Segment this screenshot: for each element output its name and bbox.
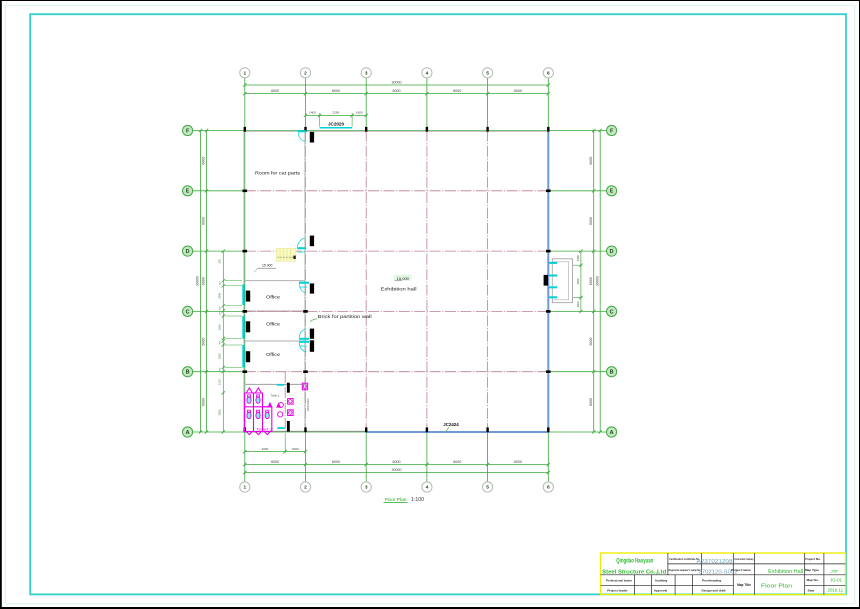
svg-text:30000: 30000: [196, 276, 200, 286]
svg-text:2000: 2000: [292, 447, 299, 451]
svg-text:A: A: [610, 430, 614, 436]
svg-text:2: 2: [304, 71, 307, 77]
svg-text:3200: 3200: [576, 278, 580, 285]
svg-text:Toilet 2: Toilet 2: [256, 427, 274, 432]
svg-text:Proofreading: Proofreading: [702, 578, 721, 582]
svg-text:E: E: [186, 189, 190, 195]
svg-text:Office: Office: [266, 295, 281, 300]
svg-text:30000: 30000: [595, 276, 599, 286]
svg-text:4: 4: [426, 71, 429, 77]
svg-text:Design and draft: Design and draft: [702, 588, 726, 592]
svg-text:1400: 1400: [576, 255, 580, 262]
svg-text:600: 600: [219, 259, 222, 264]
svg-text:Exhibition Hall: Exhibition Hall: [768, 569, 803, 575]
svg-text:Floor Plan: Floor Plan: [385, 497, 407, 503]
svg-text:6000: 6000: [332, 89, 340, 93]
svg-text:Map No.: Map No.: [807, 578, 819, 582]
svg-text:6000: 6000: [453, 89, 461, 93]
svg-text:6000: 6000: [393, 460, 401, 464]
svg-text:6000: 6000: [202, 157, 206, 165]
svg-text:6000: 6000: [514, 89, 522, 93]
svg-text:JTF: JTF: [831, 569, 839, 574]
svg-text:Office: Office: [266, 352, 281, 357]
svg-text:M0921: M0921: [300, 345, 308, 348]
svg-text:2200: 2200: [333, 111, 340, 115]
svg-text:15.000: 15.000: [397, 276, 410, 281]
svg-text:4000: 4000: [262, 447, 269, 451]
svg-text:B: B: [610, 370, 614, 376]
svg-text:1500x2900: 1500x2900: [306, 398, 310, 411]
svg-text:Room for car parts: Room for car parts: [255, 171, 300, 176]
svg-text:6000: 6000: [202, 277, 206, 285]
svg-text:6000: 6000: [332, 460, 340, 464]
svg-text:6000: 6000: [589, 398, 593, 406]
svg-text:1400: 1400: [309, 111, 316, 115]
svg-text:1400: 1400: [356, 111, 363, 115]
svg-text:Exhibition hall: Exhibition hall: [381, 286, 417, 291]
svg-text:M0921: M0921: [300, 286, 308, 289]
svg-text:M0921: M0921: [298, 251, 306, 254]
svg-text:6: 6: [547, 485, 550, 491]
svg-text:JC2020: JC2020: [328, 122, 345, 127]
svg-text:6000: 6000: [453, 460, 461, 464]
svg-text:30000: 30000: [392, 80, 402, 84]
svg-text:6000: 6000: [271, 89, 279, 93]
svg-text:Steel Structure Co.,Ltd: Steel Structure Co.,Ltd: [602, 569, 666, 575]
svg-text:Brick for partition wall: Brick for partition wall: [318, 314, 372, 319]
svg-text:Approval: Approval: [654, 588, 668, 592]
svg-text:6000: 6000: [202, 217, 206, 225]
svg-text:1400: 1400: [576, 301, 580, 308]
svg-text:3: 3: [365, 485, 368, 491]
svg-text:E: E: [610, 189, 614, 195]
svg-text:6000: 6000: [589, 217, 593, 225]
svg-text:JC2424: JC2424: [443, 422, 459, 427]
svg-text:Qingdao Haoyuan: Qingdao Haoyuan: [616, 559, 653, 565]
svg-text:A237021208: A237021208: [697, 559, 733, 565]
svg-text:C: C: [610, 309, 614, 315]
svg-text:6000: 6000: [202, 338, 206, 346]
svg-text:5: 5: [486, 485, 489, 491]
svg-text:Map Title: Map Title: [737, 583, 751, 587]
svg-text:D: D: [610, 249, 614, 255]
svg-text:Construction Company: Construction Company: [734, 557, 754, 561]
svg-text:2018.11: 2018.11: [828, 588, 844, 593]
svg-text:6000: 6000: [589, 338, 593, 346]
svg-text:JG-01: JG-01: [830, 577, 843, 582]
svg-text:Project name: Project name: [731, 568, 751, 572]
svg-text:2100: 2100: [218, 379, 222, 385]
svg-text:3000: 3000: [218, 292, 222, 298]
svg-text:Floor Plan: Floor Plan: [761, 584, 792, 590]
svg-text:Map Type: Map Type: [805, 568, 819, 572]
svg-text:C: C: [186, 309, 190, 315]
svg-text:Project leader: Project leader: [607, 588, 628, 592]
svg-text:6000: 6000: [514, 460, 522, 464]
svg-text:A: A: [186, 430, 190, 436]
svg-text:1:100: 1:100: [411, 497, 424, 503]
svg-text:6000: 6000: [589, 277, 593, 285]
svg-text:30000: 30000: [392, 468, 402, 472]
svg-text:5: 5: [486, 71, 489, 77]
svg-text:1: 1: [243, 71, 246, 77]
svg-text:6000: 6000: [271, 460, 279, 464]
svg-text:1: 1: [243, 485, 246, 491]
svg-text:3000: 3000: [218, 324, 222, 330]
svg-text:Office: Office: [266, 322, 281, 327]
svg-text:6: 6: [547, 71, 550, 77]
svg-text:15.000: 15.000: [262, 264, 272, 268]
svg-text:3: 3: [365, 71, 368, 77]
svg-text:D: D: [186, 249, 190, 255]
svg-text:2: 2: [304, 485, 307, 491]
svg-text:3000: 3000: [218, 353, 222, 359]
svg-text:Auditing: Auditing: [655, 578, 668, 582]
svg-text:B: B: [186, 370, 190, 376]
svg-text:Toilet 1: Toilet 1: [271, 394, 280, 398]
svg-text:Registered engineer's stamp No: Registered engineer's stamp No.: [669, 568, 701, 572]
svg-text:3900: 3900: [218, 409, 222, 415]
svg-text:Date: Date: [808, 588, 815, 592]
svg-text:6000: 6000: [393, 89, 401, 93]
svg-text:6000: 6000: [589, 157, 593, 165]
svg-text:Project No.: Project No.: [805, 557, 821, 561]
svg-text:Professional leader: Professional leader: [606, 578, 633, 582]
svg-text:4: 4: [426, 485, 429, 491]
svg-text:6000: 6000: [202, 398, 206, 406]
